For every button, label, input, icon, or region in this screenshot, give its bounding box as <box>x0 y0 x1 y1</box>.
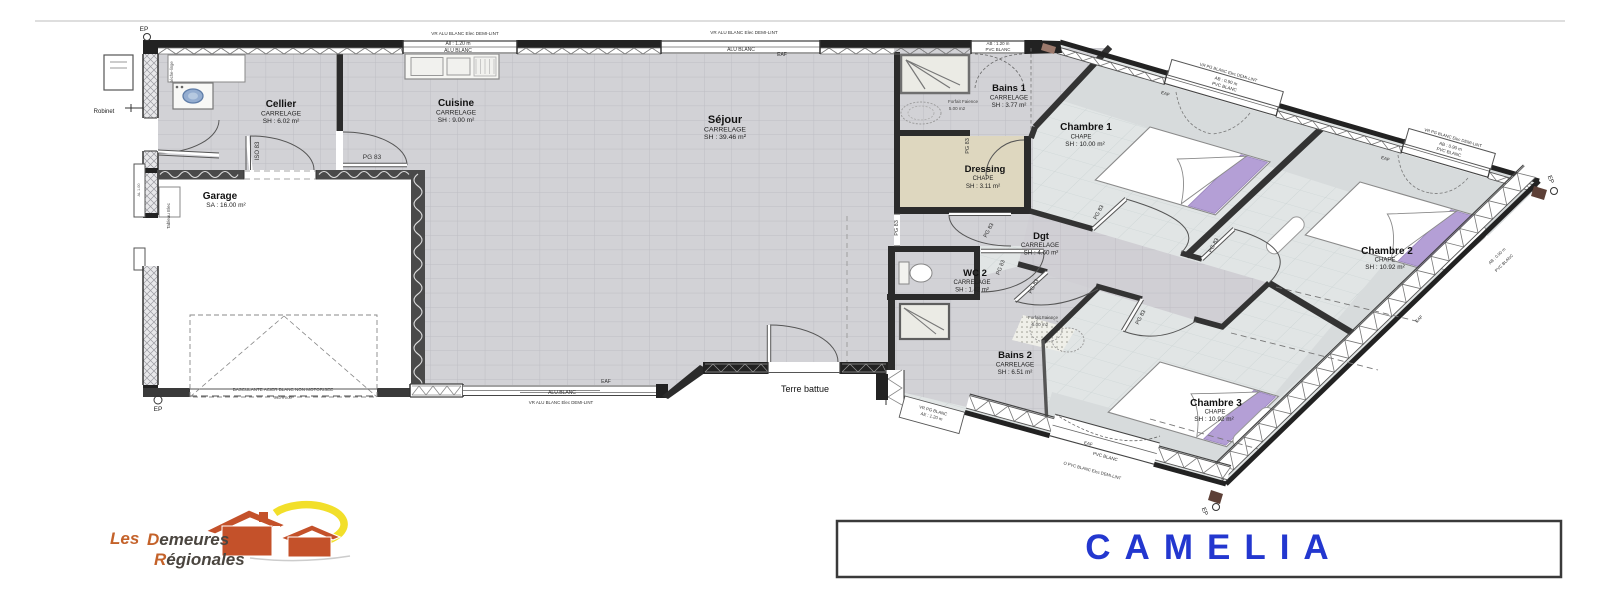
svg-text:CARRELAGE: CARRELAGE <box>996 362 1034 369</box>
svg-text:EP: EP <box>154 406 163 413</box>
svg-text:Forfait Faience: Forfait Faience <box>948 99 979 104</box>
svg-text:ISO 83: ISO 83 <box>255 141 261 160</box>
svg-text:Régionales: Régionales <box>154 550 245 569</box>
svg-text:Terre battue: Terre battue <box>781 384 829 394</box>
svg-text:WC 2: WC 2 <box>963 268 987 279</box>
svg-text:SH : 3.11 m²: SH : 3.11 m² <box>966 183 1000 190</box>
svg-text:EAF: EAF <box>777 52 787 58</box>
svg-text:Forfait Faience: Forfait Faience <box>1028 315 1059 320</box>
svg-text:CARRELAGE: CARRELAGE <box>261 111 302 118</box>
svg-text:sèche-linge: sèche-linge <box>169 61 174 83</box>
svg-text:SH : 10.92 m²: SH : 10.92 m² <box>1365 264 1404 271</box>
svg-text:ALU BLANC: ALU BLANC <box>727 47 755 53</box>
svg-text:CHAPE: CHAPE <box>1071 135 1092 141</box>
svg-text:Chambre 2: Chambre 2 <box>1361 246 1413 257</box>
svg-text:ALU BLANC: ALU BLANC <box>444 48 472 54</box>
svg-text:Chambre 3: Chambre 3 <box>1190 398 1242 409</box>
svg-text:Chambre 1: Chambre 1 <box>1060 122 1112 133</box>
svg-text:SH : 10.92 m²: SH : 10.92 m² <box>1194 416 1233 423</box>
svg-text:Garage: Garage <box>203 191 238 202</box>
svg-text:SH : 4.60 m²: SH : 4.60 m² <box>1024 250 1059 257</box>
svg-text:SH : 3.77 m²: SH : 3.77 m² <box>992 102 1027 109</box>
svg-text:BASCULANTE ACIER BLANC NON MOT: BASCULANTE ACIER BLANC NON MOTORISEE <box>233 387 333 392</box>
svg-text:CARRELAGE: CARRELAGE <box>1021 242 1059 249</box>
svg-text:Bains 2: Bains 2 <box>998 350 1032 361</box>
svg-text:CARRELAGE: CARRELAGE <box>436 110 477 117</box>
svg-text:SA : 16.00 m²: SA : 16.00 m² <box>206 202 246 209</box>
svg-text:5.00 m2: 5.00 m2 <box>1032 322 1049 327</box>
svg-text:Cellier: Cellier <box>266 99 297 110</box>
svg-text:Dressing: Dressing <box>965 164 1006 175</box>
svg-text:PVC BLANC: PVC BLANC <box>986 47 1011 52</box>
svg-text:VR ALU BLANC Elec DEMI-LINT: VR ALU BLANC Elec DEMI-LINT <box>710 30 778 35</box>
svg-text:CARRELAGE: CARRELAGE <box>953 280 990 286</box>
svg-text:Séjour: Séjour <box>708 114 743 126</box>
svg-text:CARRELAGE: CARRELAGE <box>990 95 1028 102</box>
svg-text:All : 1.20 m: All : 1.20 m <box>445 41 470 47</box>
svg-text:CARRELAGE: CARRELAGE <box>704 127 746 134</box>
svg-text:Les: Les <box>110 529 139 548</box>
svg-text:SH : 10.00 m²: SH : 10.00 m² <box>1065 141 1104 148</box>
svg-text:CHAPE: CHAPE <box>1205 410 1226 416</box>
svg-text:Cuisine: Cuisine <box>438 98 475 109</box>
svg-text:EAF: EAF <box>601 379 611 385</box>
svg-text:Tableau Elec: Tableau Elec <box>166 202 171 229</box>
svg-text:SH : 39.46 m²: SH : 39.46 m² <box>704 134 747 141</box>
svg-text:Dgt: Dgt <box>1033 231 1050 242</box>
svg-text:CHAPE: CHAPE <box>973 176 994 182</box>
svg-text:CHAPE: CHAPE <box>1375 258 1396 264</box>
svg-text:AL 1.00: AL 1.00 <box>137 184 141 197</box>
svg-text:SH : 1.42 m²: SH : 1.42 m² <box>955 288 989 294</box>
svg-text:PG 83: PG 83 <box>965 138 971 154</box>
svg-text:AB : 1.20 m: AB : 1.20 m <box>987 41 1010 46</box>
svg-text:VR ALU BLANC Elec DEMI-LINT: VR ALU BLANC Elec DEMI-LINT <box>529 400 594 405</box>
svg-text:SH : 6.02 m²: SH : 6.02 m² <box>263 118 300 125</box>
svg-text:SH : 6.51 m²: SH : 6.51 m² <box>998 369 1033 376</box>
svg-text:ALU.BLANC: ALU.BLANC <box>548 390 576 396</box>
svg-text:PG 83: PG 83 <box>894 220 900 236</box>
svg-text:EP: EP <box>140 26 149 33</box>
svg-text:SH : 9.00 m²: SH : 9.00 m² <box>438 117 475 124</box>
svg-text:Robinet: Robinet <box>94 109 115 115</box>
svg-text:CAMELIA: CAMELIA <box>1085 528 1342 567</box>
svg-text:VR ALU BLANC Elec DEMI-LINT: VR ALU BLANC Elec DEMI-LINT <box>431 31 499 36</box>
svg-text:Bains 1: Bains 1 <box>992 83 1027 94</box>
svg-text:PG 83: PG 83 <box>363 154 382 161</box>
svg-text:240 x 200: 240 x 200 <box>274 395 292 400</box>
svg-text:Demeures: Demeures <box>147 530 229 549</box>
svg-text:5.00 m2: 5.00 m2 <box>949 106 966 111</box>
